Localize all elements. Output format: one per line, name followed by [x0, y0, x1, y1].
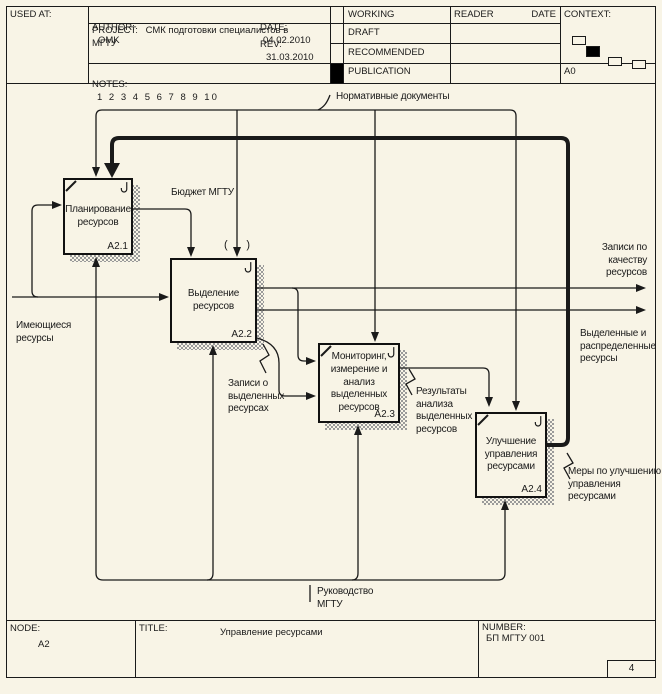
footer-divider	[135, 620, 136, 678]
reader-date-label: DATE	[500, 9, 556, 22]
used-at-label: USED AT:	[10, 9, 52, 22]
rev-value: 31.03.2010	[266, 52, 314, 63]
activity-label: Улучшение управления ресурсами	[484, 436, 539, 474]
decomposition-hook-icon	[120, 181, 129, 194]
publication-marker	[331, 64, 343, 83]
status-recommended: RECOMMENDED	[348, 47, 425, 60]
decomposition-hook-icon	[387, 346, 396, 359]
arrow-label-available-resources: Имеющиеся ресурсы	[16, 320, 71, 345]
node-value: A2	[38, 639, 50, 652]
idef0-diagram-page: USED AT: AUTHOR: OMK DATE: 04.02.2010 PR…	[0, 0, 662, 694]
arrow-label-budget: Бюджет МГТУ	[171, 187, 234, 200]
context-current-box	[586, 46, 600, 57]
title-value: Управление ресурсами	[220, 627, 323, 640]
context-label: CONTEXT:	[564, 9, 611, 22]
rev-label: REV:	[260, 39, 282, 50]
activity-id: A2.1	[107, 241, 128, 252]
context-thumb-box	[608, 57, 622, 66]
context-node-label: A0	[564, 66, 576, 79]
node-label: NODE:	[10, 623, 40, 636]
notes-label: NOTES:	[92, 79, 127, 90]
corner-fold-icon	[65, 180, 77, 192]
context-thumb-box	[572, 36, 586, 45]
page-number-box: 4	[607, 660, 656, 678]
footer-divider	[478, 620, 479, 678]
arrow-label-improvement-measures: Меры по улучшению управления ресурсами	[568, 466, 661, 504]
status-working: WORKING	[348, 9, 394, 22]
activity-box-a23: Мониторинг, измерение и анализ выделенны…	[318, 343, 400, 423]
arrow-label-management: Руководство МГТУ	[317, 586, 373, 611]
activity-id: A2.3	[374, 409, 395, 420]
decomposition-hook-icon	[534, 415, 543, 428]
context-thumb-box	[632, 60, 646, 69]
activity-label: Планирование ресурсов	[64, 204, 132, 230]
arrow-label-allocated-resources: Выделенные и распределенные ресурсы	[580, 328, 656, 366]
tunnel-close-paren: )	[246, 239, 250, 251]
corner-fold-icon	[477, 414, 489, 426]
header-row-line	[88, 23, 560, 24]
header-row-line	[330, 43, 560, 44]
reader-label: READER	[454, 9, 494, 22]
tunnel-marker: ( )	[224, 239, 250, 251]
header-divider	[343, 6, 344, 84]
status-draft: DRAFT	[348, 27, 380, 40]
activity-label: Выделение ресурсов	[187, 288, 240, 314]
footer-frame	[6, 620, 656, 678]
project-label: PROJECT:	[92, 25, 138, 36]
header-divider	[450, 6, 451, 84]
page-number: 4	[629, 663, 635, 674]
arrow-label-allocation-records: Записи о выделенных ресурсах	[228, 378, 284, 416]
header-divider	[560, 6, 561, 84]
activity-box-a22: Выделение ресурсов A2.2	[170, 258, 257, 343]
arrow-label-analysis-results: Результаты анализа выделенных ресурсов	[416, 386, 472, 436]
activity-box-a21: Планирование ресурсов A2.1	[63, 178, 133, 255]
activity-box-a24: Улучшение управления ресурсами A2.4	[475, 412, 547, 498]
header-row-line	[88, 63, 656, 64]
status-publication: PUBLICATION	[348, 66, 411, 79]
title-label: TITLE:	[139, 623, 168, 636]
number-value: БП МГТУ 001	[486, 633, 545, 646]
activity-id: A2.2	[231, 329, 252, 340]
arrow-label-normative-docs: Нормативные документы	[336, 91, 449, 104]
corner-fold-icon	[320, 345, 332, 357]
activity-label: Мониторинг, измерение и анализ выделенны…	[330, 351, 389, 415]
decomposition-hook-icon	[244, 261, 253, 274]
tunnel-open-paren: (	[224, 239, 228, 251]
arrow-label-quality-records: Записи по качеству ресурсов	[602, 242, 647, 280]
activity-id: A2.4	[521, 484, 542, 495]
header-divider	[88, 6, 89, 84]
notes-value: 1 2 3 4 5 6 7 8 9 10	[97, 92, 219, 103]
notes-line: NOTES: 1 2 3 4 5 6 7 8 9 10	[92, 66, 219, 104]
rev-line: REV: 31.03.2010	[260, 26, 314, 64]
